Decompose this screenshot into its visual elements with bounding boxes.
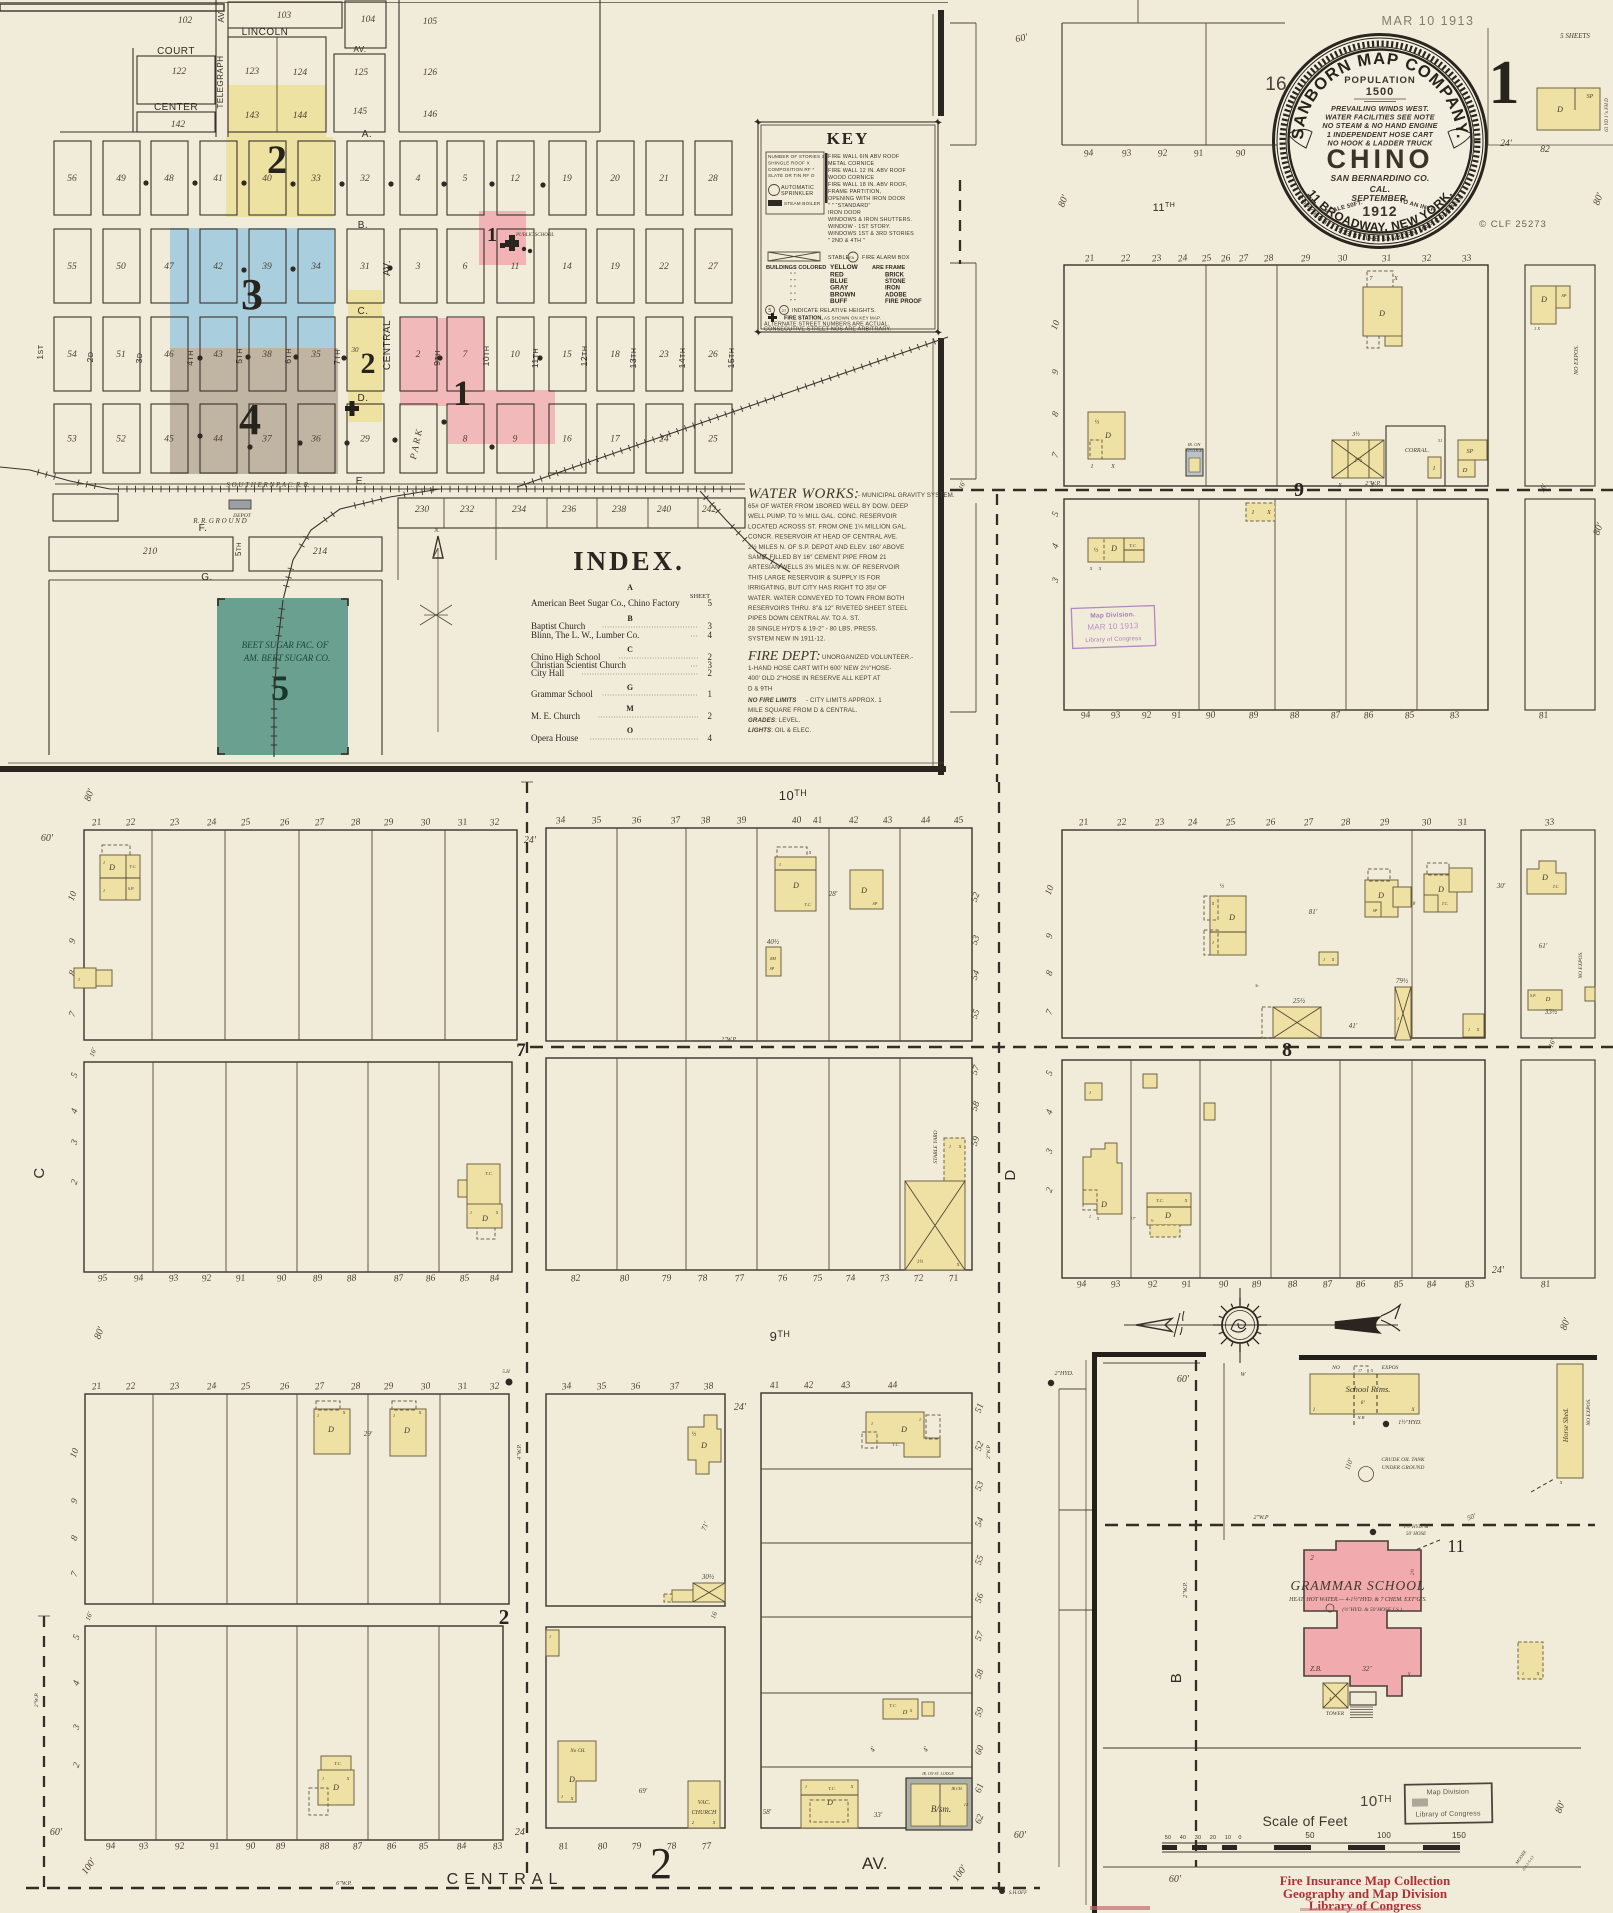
- svg-text:½: ½: [692, 1431, 697, 1438]
- svg-text:M: M: [626, 704, 634, 713]
- svg-text:BEET SUGAR FAC. OF: BEET SUGAR FAC. OF: [242, 640, 329, 650]
- svg-text:SHINGLE ROOF X: SHINGLE ROOF X: [768, 160, 810, 165]
- svg-text:40½: 40½: [767, 938, 780, 946]
- svg-text:X: X: [1184, 1198, 1188, 1203]
- svg-text:36: 36: [629, 1381, 641, 1392]
- svg-text:STUDGE: STUDGE: [1185, 448, 1203, 453]
- svg-text:89: 89: [312, 1273, 323, 1284]
- svg-text:X: X: [909, 1708, 913, 1713]
- svg-text:100: 100: [1377, 1831, 1391, 1840]
- svg-text:92: 92: [1157, 148, 1168, 159]
- svg-text:B.: B.: [358, 220, 368, 231]
- svg-text:24': 24': [734, 1402, 747, 1413]
- svg-text:- CITY LIMITS APPROX. 1: - CITY LIMITS APPROX. 1: [806, 697, 882, 704]
- svg-text:4: 4: [1329, 1696, 1331, 1701]
- svg-text:FA: FA: [849, 255, 854, 260]
- svg-text:1: 1: [1313, 1408, 1316, 1413]
- svg-text:60': 60': [50, 1827, 63, 1838]
- svg-text:79½: 79½: [1396, 977, 1409, 985]
- svg-text:D: D: [860, 886, 867, 895]
- svg-text:33: 33: [310, 174, 321, 184]
- svg-text:80: 80: [597, 1841, 608, 1852]
- svg-text:BRICK: BRICK: [885, 273, 905, 279]
- svg-text:IR. ON ST. LODGE: IR. ON ST. LODGE: [921, 1771, 954, 1776]
- svg-text:R. R. G R O U N D: R. R. G R O U N D: [192, 517, 246, 525]
- svg-text:30': 30': [1496, 882, 1506, 890]
- svg-text:1: 1: [103, 888, 105, 893]
- svg-text:½: ½: [1094, 547, 1099, 554]
- svg-text:LINCOLN: LINCOLN: [242, 27, 289, 38]
- svg-text:Scale of Feet: Scale of Feet: [1262, 1813, 1347, 1829]
- svg-text:1: 1: [805, 1784, 807, 1789]
- svg-text:B: B: [1168, 1673, 1185, 1684]
- svg-text:NO EXPOS.: NO EXPOS.: [1578, 951, 1584, 979]
- svg-text:X: X: [1370, 1368, 1374, 1373]
- svg-text:230: 230: [415, 505, 430, 515]
- svg-text:234: 234: [512, 505, 527, 515]
- svg-text:CORRAL.: CORRAL.: [1405, 448, 1429, 454]
- svg-text:SP: SP: [1562, 293, 1567, 298]
- svg-text:FIRE DEPT:: FIRE DEPT:: [747, 649, 821, 664]
- svg-text:4: 4: [416, 174, 421, 184]
- svg-text:FIRE WALL 18 IN. ABV ROOF,: FIRE WALL 18 IN. ABV ROOF,: [828, 182, 907, 188]
- svg-text:″ ″: ″ ″: [790, 286, 796, 292]
- svg-text:SAN BERNARDINO CO.: SAN BERNARDINO CO.: [1331, 173, 1430, 183]
- svg-text:49: 49: [116, 174, 126, 184]
- svg-text:FIRE WALL 6IN ABV ROOF: FIRE WALL 6IN ABV ROOF: [828, 154, 900, 160]
- svg-text:NO EXPOS.: NO EXPOS.: [1586, 1398, 1592, 1426]
- svg-text:″ ″: ″ ″: [790, 292, 796, 298]
- svg-text:UNDER GROUND: UNDER GROUND: [1382, 1465, 1425, 1471]
- svg-text:104: 104: [361, 15, 376, 25]
- svg-text:42: 42: [213, 262, 223, 272]
- svg-text:30½: 30½: [701, 1573, 715, 1581]
- svg-text:D: D: [700, 1441, 707, 1450]
- svg-text:Opera House: Opera House: [531, 733, 578, 743]
- svg-text:D.: D.: [358, 393, 369, 404]
- svg-text:22: 22: [1120, 253, 1131, 264]
- svg-text:31: 31: [1456, 817, 1468, 828]
- svg-text:X: X: [1098, 566, 1102, 571]
- svg-text:GRADES: LEVEL.: GRADES: LEVEL.: [748, 717, 800, 724]
- svg-text:32: 32: [488, 1381, 500, 1392]
- svg-text:2″HYD.: 2″HYD.: [1054, 1371, 1073, 1377]
- svg-text:Library of Congress: Library of Congress: [1416, 1810, 1481, 1818]
- svg-text:T.C.: T.C.: [828, 1786, 835, 1791]
- svg-text:91: 91: [1181, 1279, 1192, 1290]
- svg-text:2″W.P: 2″W.P: [1253, 1515, 1268, 1521]
- svg-text:19: 19: [610, 262, 620, 272]
- svg-text:1: 1: [1323, 957, 1325, 962]
- svg-text:FRAME PARTITION,: FRAME PARTITION,: [828, 189, 882, 195]
- svg-text:2: 2: [267, 137, 287, 182]
- svg-text:4: 4: [239, 395, 261, 444]
- svg-text:94: 94: [133, 1273, 144, 1284]
- svg-text:3: 3: [415, 262, 421, 272]
- svg-text:71: 71: [948, 1273, 959, 1284]
- svg-text:53: 53: [67, 435, 77, 445]
- svg-text:C: C: [31, 1167, 48, 1178]
- svg-text:TOWER: TOWER: [1326, 1711, 1345, 1717]
- svg-text:½: ½: [1220, 883, 1225, 890]
- svg-text:1: 1: [1397, 1016, 1399, 1021]
- svg-text:146: 146: [423, 110, 438, 120]
- svg-text:IRON DOOR: IRON DOOR: [828, 210, 861, 216]
- svg-text:34: 34: [554, 815, 566, 826]
- svg-text:2: 2: [708, 711, 713, 721]
- svg-text:1: 1: [708, 689, 713, 699]
- svg-text:122: 122: [172, 67, 187, 77]
- svg-text:1500: 1500: [1366, 86, 1394, 98]
- svg-text:81: 81: [558, 1841, 569, 1852]
- svg-text:4″W.P.: 4″W.P.: [516, 1444, 523, 1460]
- svg-text:45: 45: [953, 815, 964, 826]
- svg-text:12: 12: [510, 174, 520, 184]
- svg-text:11: 11: [511, 262, 520, 272]
- svg-text:25: 25: [240, 1381, 251, 1392]
- svg-text:1: 1: [470, 1210, 472, 1215]
- svg-text:1: 1: [453, 373, 471, 413]
- svg-text:123: 123: [245, 67, 260, 77]
- svg-text:85: 85: [459, 1273, 470, 1284]
- svg-text:9: 9: [1294, 479, 1304, 501]
- svg-text:X: X: [1266, 510, 1271, 516]
- svg-text:SAME, FILLED BY 16″ CEMENT PI: SAME, FILLED BY 16″ CEMENT PIPE FROM 21: [748, 554, 887, 561]
- svg-text:1: 1: [317, 1413, 319, 1418]
- svg-text:2: 2: [416, 350, 421, 360]
- svg-text:26: 26: [1220, 253, 1231, 264]
- svg-text:88: 88: [319, 1841, 330, 1852]
- svg-text:91: 91: [235, 1273, 246, 1284]
- svg-text:IR.CH.: IR.CH.: [950, 1786, 962, 1791]
- svg-text:X: X: [1331, 957, 1335, 962]
- svg-text:X: X: [956, 1262, 960, 1267]
- svg-text:HEAT: HOT WATER.— 4-1½″HYD. &: HEAT: HOT WATER.— 4-1½″HYD. & 7 CHEM. EX…: [1288, 1596, 1427, 1603]
- svg-text:24': 24': [1500, 139, 1513, 149]
- svg-text:X: X: [346, 1776, 350, 1781]
- svg-text:D: D: [792, 881, 799, 890]
- svg-text:23: 23: [1151, 253, 1162, 264]
- svg-text:(½″HYD. & 50’HOSE I.S.): (½″HYD. & 50’HOSE I.S.): [1342, 1606, 1402, 1613]
- svg-text:42: 42: [803, 1380, 814, 1391]
- svg-text:0: 0: [1238, 1835, 1241, 1841]
- svg-text:9: 9: [513, 435, 518, 445]
- svg-text:1: 1: [78, 977, 80, 982]
- svg-text:25: 25: [708, 435, 718, 445]
- svg-text:AV.: AV.: [217, 9, 226, 22]
- svg-text:1½: 1½: [917, 1260, 924, 1265]
- svg-text:29: 29: [383, 817, 394, 828]
- svg-text:88: 88: [1289, 710, 1300, 721]
- svg-text:Blinn, The L. W., Lumber: Blinn, The L. W., Lumber Co.: [531, 630, 639, 640]
- svg-text:WELL PUMP. TO ½ MILL GAL. CONC: WELL PUMP. TO ½ MILL GAL. CONC. RESERVOI…: [748, 513, 897, 520]
- svg-text:INDICATE RELATIVE HEIGHTS.: INDICATE RELATIVE HEIGHTS.: [792, 308, 876, 314]
- svg-text:39: 39: [735, 815, 747, 826]
- svg-text:84: 84: [489, 1273, 500, 1284]
- svg-text:24: 24: [206, 817, 217, 828]
- svg-text:232: 232: [460, 505, 475, 515]
- svg-text:EXPOS: EXPOS: [1381, 1365, 1399, 1371]
- svg-text:33: 33: [1460, 253, 1472, 264]
- svg-text:1: 1: [1252, 510, 1255, 516]
- svg-text:38: 38: [702, 1381, 714, 1392]
- svg-text:21: 21: [91, 1381, 102, 1392]
- svg-text:CENTRAL: CENTRAL: [447, 1871, 564, 1888]
- svg-text:35: 35: [595, 1381, 607, 1392]
- svg-text:23: 23: [169, 817, 180, 828]
- svg-text:28: 28: [350, 817, 361, 828]
- svg-text:10: 10: [1225, 1835, 1232, 1841]
- svg-text:″ 2ND & 4TH ″: ″ 2ND & 4TH ″: [828, 238, 865, 244]
- svg-text:32: 32: [1420, 253, 1432, 264]
- svg-text:D: D: [1540, 295, 1547, 304]
- svg-text:School R’ms.: School R’ms.: [1346, 1384, 1391, 1394]
- svg-text:2: 2: [708, 668, 713, 678]
- svg-text:83: 83: [1449, 710, 1460, 721]
- svg-text:144: 144: [293, 111, 308, 121]
- svg-text:1: 1: [1091, 464, 1094, 470]
- svg-text:3: 3: [241, 270, 263, 319]
- svg-text:½: ½: [1151, 1218, 1154, 1223]
- svg-text:89: 89: [1248, 710, 1259, 721]
- svg-text:33': 33': [873, 1811, 883, 1819]
- svg-text:8: 8: [463, 435, 468, 445]
- svg-text:24: 24: [1177, 253, 1188, 264]
- svg-text:31: 31: [456, 817, 468, 828]
- svg-text:25: 25: [1201, 253, 1212, 264]
- svg-text:D: D: [1228, 913, 1235, 922]
- svg-text:D: D: [1164, 1211, 1171, 1220]
- svg-text:1: 1: [1522, 1671, 1524, 1676]
- svg-text:15: 15: [562, 350, 572, 360]
- svg-text:2: 2: [1310, 1554, 1314, 1562]
- svg-text:STABLE YARD: STABLE YARD: [933, 1130, 939, 1163]
- svg-text:WOOD CORNICE: WOOD CORNICE: [828, 175, 874, 181]
- svg-text:83: 83: [492, 1841, 503, 1852]
- svg-text:CENTRAL: CENTRAL: [382, 320, 393, 370]
- svg-text:COMPOSITION RF *: COMPOSITION RF *: [768, 167, 814, 172]
- svg-text:93: 93: [1110, 1279, 1121, 1290]
- svg-text:82: 82: [570, 1273, 581, 1284]
- svg-text:D: D: [1104, 431, 1111, 440]
- svg-text:POPULATION: POPULATION: [1344, 75, 1416, 86]
- svg-text:90: 90: [276, 1273, 287, 1284]
- svg-text:D: D: [1462, 467, 1468, 474]
- svg-text:RM: RM: [769, 956, 776, 961]
- svg-text:46: 46: [164, 350, 174, 360]
- svg-text:SP: SP: [873, 901, 878, 906]
- svg-text:90: 90: [245, 1841, 256, 1852]
- svg-text:1: 1: [1489, 49, 1520, 117]
- svg-text:43: 43: [882, 815, 893, 826]
- svg-text:AV.: AV.: [862, 1854, 888, 1873]
- svg-text:5: 5: [708, 598, 713, 608]
- svg-text:1912: 1912: [1362, 203, 1397, 219]
- svg-text:WINDOWS 1ST & 3RD STORIES: WINDOWS 1ST & 3RD STORIES: [828, 231, 914, 237]
- svg-text:8: 8: [1282, 1039, 1292, 1061]
- svg-text:29: 29: [1379, 817, 1390, 828]
- svg-text:2″W.P: 2″W.P: [986, 1444, 992, 1458]
- svg-text:44: 44: [887, 1380, 898, 1391]
- svg-text:22: 22: [1116, 817, 1127, 828]
- svg-text:50: 50: [1305, 1831, 1315, 1840]
- svg-text:27: 27: [782, 308, 787, 313]
- svg-text:145: 145: [353, 107, 368, 117]
- svg-text:28 SINGLE HYD'S & 19-2″ - 80 L: 28 SINGLE HYD'S & 19-2″ - 80 LBS. PRESS.: [748, 625, 878, 632]
- svg-text:10: 10: [510, 350, 520, 360]
- svg-text:32: 32: [488, 817, 500, 828]
- svg-text:40: 40: [791, 815, 802, 826]
- svg-text:51: 51: [116, 350, 126, 360]
- svg-text:105: 105: [423, 17, 438, 27]
- svg-text:SLATE OR TIN RF O: SLATE OR TIN RF O: [768, 173, 815, 178]
- svg-text:1: 1: [103, 860, 105, 865]
- svg-text:1½: 1½: [1354, 457, 1362, 464]
- svg-text:American Beet Sugar Co., C: American Beet Sugar Co., Chino Factory: [531, 598, 680, 608]
- svg-text:3½: 3½: [1351, 431, 1360, 438]
- svg-text:93: 93: [168, 1273, 179, 1284]
- svg-text:69': 69': [639, 1787, 648, 1795]
- svg-text:Z.B.: Z.B.: [1310, 1665, 1322, 1673]
- svg-text:© CLF 25273: © CLF 25273: [1479, 219, 1547, 230]
- svg-text:″ ″ “STANDARD”: ″ ″ “STANDARD”: [828, 203, 870, 209]
- svg-text:D: D: [826, 1798, 833, 1807]
- svg-text:238: 238: [612, 505, 627, 515]
- svg-text:T.C.: T.C.: [889, 1703, 896, 1708]
- svg-text:ADOBE: ADOBE: [885, 292, 907, 298]
- svg-text:72: 72: [913, 1273, 924, 1284]
- svg-text:90: 90: [1235, 148, 1246, 159]
- svg-text:D: D: [1377, 891, 1384, 900]
- svg-text:41: 41: [213, 174, 223, 184]
- svg-text:84: 84: [1426, 1279, 1437, 1290]
- svg-text:D: D: [403, 1426, 410, 1435]
- svg-text:X: X: [808, 850, 812, 855]
- svg-text:26: 26: [708, 350, 718, 360]
- svg-text:YELLOW: YELLOW: [830, 264, 859, 271]
- svg-text:91: 91: [1171, 710, 1182, 721]
- svg-text:M. E. Church: M. E. Church: [531, 711, 580, 721]
- svg-text:42: 42: [848, 815, 859, 826]
- svg-text:31: 31: [1438, 438, 1443, 443]
- svg-text:92: 92: [201, 1273, 212, 1284]
- svg-text:1-HAND HOSE CART WITH 600' NEW: 1-HAND HOSE CART WITH 600' NEW 2½″HOSE-: [748, 665, 892, 672]
- svg-text:94: 94: [105, 1841, 116, 1852]
- svg-text:30: 30: [419, 817, 431, 828]
- svg-text:BUFF: BUFF: [830, 298, 847, 305]
- svg-text:1: 1: [1468, 1027, 1470, 1032]
- svg-text:1: 1: [871, 1421, 873, 1426]
- svg-text:47: 47: [164, 262, 175, 272]
- svg-text:X: X: [1393, 276, 1398, 282]
- svg-text:22: 22: [659, 262, 669, 272]
- svg-text:X: X: [418, 1410, 422, 1415]
- svg-text:D: D: [1556, 105, 1563, 114]
- svg-text:X: X: [1110, 464, 1115, 470]
- svg-text:2″W.P.: 2″W.P.: [34, 1693, 40, 1708]
- svg-text:PUBLIC SCHOOL: PUBLIC SCHOOL: [515, 233, 554, 238]
- svg-text:1: 1: [779, 862, 781, 867]
- svg-text:X: X: [1337, 483, 1342, 489]
- svg-text:5.H: 5.H: [502, 1370, 510, 1375]
- svg-text:48: 48: [164, 174, 174, 184]
- svg-text:29': 29': [364, 1430, 373, 1438]
- svg-text:84: 84: [456, 1841, 467, 1852]
- svg-text:81: 81: [1540, 1279, 1551, 1290]
- svg-text:17: 17: [610, 435, 621, 445]
- svg-text:28: 28: [1340, 817, 1351, 828]
- svg-text:D: D: [902, 1709, 908, 1716]
- svg-text:SP: SP: [1587, 94, 1594, 100]
- svg-text:4: 4: [708, 630, 713, 640]
- svg-text:T.C.: T.C.: [805, 902, 812, 907]
- svg-text:27: 27: [708, 262, 719, 272]
- svg-text:LIGHTS: OIL & ELEC.: LIGHTS: OIL & ELEC.: [748, 727, 811, 734]
- svg-text:Grammar School: Grammar School: [531, 689, 593, 699]
- svg-text:NO EXPOS.: NO EXPOS.: [1574, 345, 1580, 376]
- svg-text:ARTESIAN WELLS 3½ MILES N.W. O: ARTESIAN WELLS 3½ MILES N.W. OF RESERVOI…: [748, 564, 900, 571]
- svg-text:36: 36: [310, 435, 321, 445]
- svg-text:6: 6: [463, 262, 468, 272]
- svg-text:RESERVOIRS THRU. 8″& 12″ RIVET: RESERVOIRS THRU. 8″& 12″ RIVETED SHEET S…: [748, 605, 908, 612]
- svg-text:94: 94: [1080, 710, 1091, 721]
- svg-text:28: 28: [350, 1381, 361, 1392]
- svg-text:1: 1: [1089, 1214, 1091, 1219]
- svg-text:240: 240: [657, 505, 672, 515]
- svg-text:WATER WORKS:: WATER WORKS:: [748, 486, 859, 502]
- svg-text:FIRE WALL 12 IN. ABV ROOF: FIRE WALL 12 IN. ABV ROOF: [828, 168, 906, 174]
- svg-text:WINDOWS & IRON SHUTTERS.: WINDOWS & IRON SHUTTERS.: [828, 217, 912, 223]
- svg-text:KEY: KEY: [827, 129, 870, 148]
- svg-text:D: D: [1437, 885, 1444, 894]
- svg-text:32: 32: [359, 174, 370, 184]
- svg-text:45: 45: [164, 435, 174, 445]
- svg-text:2″W.P.: 2″W.P.: [1365, 481, 1381, 487]
- svg-text:T.C.: T.C.: [485, 1171, 492, 1176]
- svg-text:60': 60': [1177, 1374, 1190, 1385]
- svg-text:SPRINKLER: SPRINKLER: [781, 191, 813, 197]
- svg-text:T.C.: T.C.: [1553, 884, 1560, 889]
- svg-text:22: 22: [125, 1381, 136, 1392]
- svg-text:24: 24: [1187, 817, 1198, 828]
- svg-text:X: X: [1096, 1216, 1100, 1221]
- svg-text:Map Division: Map Division: [1427, 1789, 1470, 1797]
- svg-text:MAR 10 1913: MAR 10 1913: [1382, 14, 1475, 28]
- svg-text:31: 31: [456, 1381, 468, 1392]
- svg-text:D: D: [568, 1775, 575, 1784]
- svg-text:D: D: [481, 1214, 488, 1223]
- svg-text:D: D: [327, 1425, 334, 1434]
- svg-text:NO: NO: [1331, 1365, 1340, 1371]
- svg-text:60': 60': [1169, 1874, 1182, 1885]
- svg-text:C.: C.: [358, 306, 369, 317]
- svg-text:21: 21: [91, 817, 102, 828]
- svg-text:60': 60': [41, 833, 54, 844]
- svg-text:89: 89: [275, 1841, 286, 1852]
- svg-text:City Hall: City Hall: [531, 668, 565, 678]
- svg-text:236: 236: [562, 505, 577, 515]
- svg-text:82: 82: [1540, 145, 1550, 155]
- svg-text:B: B: [627, 614, 633, 623]
- svg-text:PIPES DOWN CENTRAL AV. TO A. S: PIPES DOWN CENTRAL AV. TO A. ST.: [748, 615, 860, 622]
- svg-text:14: 14: [562, 262, 572, 272]
- svg-text:214: 214: [313, 547, 328, 557]
- svg-text:D: D: [1110, 544, 1117, 553]
- svg-text:74: 74: [845, 1273, 856, 1284]
- svg-text:34: 34: [560, 1381, 572, 1392]
- svg-text:MILE SQUARE FROM D & CENTRAL.: MILE SQUARE FROM D & CENTRAL.: [748, 707, 858, 714]
- svg-text:5: 5: [463, 174, 468, 184]
